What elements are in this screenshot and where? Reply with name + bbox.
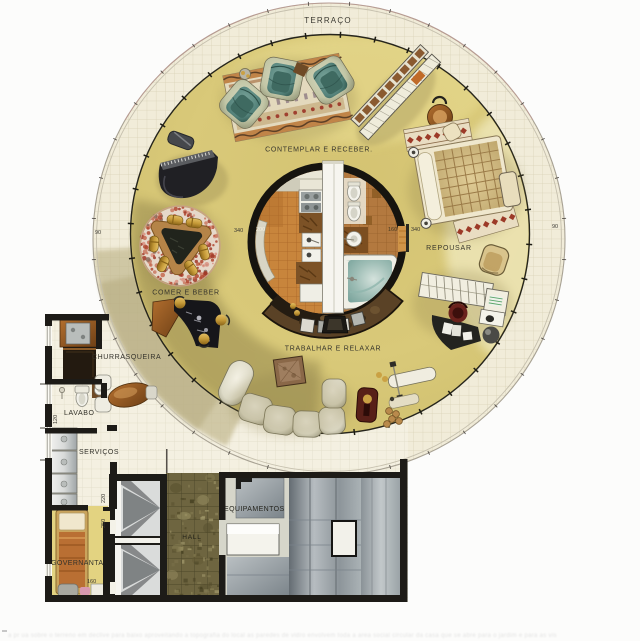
- svg-text:CONTEMPLAR E RECEBER.: CONTEMPLAR E RECEBER.: [265, 147, 373, 154]
- svg-text:250: 250: [101, 519, 107, 528]
- svg-text:90: 90: [552, 224, 558, 230]
- svg-text:220: 220: [101, 494, 107, 503]
- svg-text:HALL: HALL: [182, 534, 201, 541]
- svg-text:340: 340: [234, 228, 243, 234]
- svg-text:90: 90: [95, 230, 101, 236]
- svg-text:200: 200: [256, 227, 265, 233]
- svg-text:REPOUSAR: REPOUSAR: [426, 245, 472, 252]
- svg-text:TERRAÇO: TERRAÇO: [304, 16, 352, 25]
- svg-text:a pr ua sobre o terreno em de: a pr ua sobre o terreno em declive para …: [8, 633, 557, 639]
- svg-text:GOVERNANTA: GOVERNANTA: [51, 560, 104, 567]
- svg-text:EQUIPAMENTOS: EQUIPAMENTOS: [224, 506, 285, 513]
- svg-text:340: 340: [411, 227, 420, 233]
- svg-text:120: 120: [53, 415, 59, 424]
- svg-text:SERVIÇOS: SERVIÇOS: [79, 449, 119, 456]
- svg-text:160: 160: [388, 227, 397, 233]
- svg-text:LAVABO: LAVABO: [64, 410, 95, 417]
- svg-text:TRABALHAR E RELAXAR: TRABALHAR E RELAXAR: [285, 346, 382, 353]
- svg-text:CHURRASQUEIRA: CHURRASQUEIRA: [92, 354, 161, 361]
- svg-text:160: 160: [87, 579, 96, 585]
- svg-text:COMER E BEBER: COMER E BEBER: [152, 290, 219, 297]
